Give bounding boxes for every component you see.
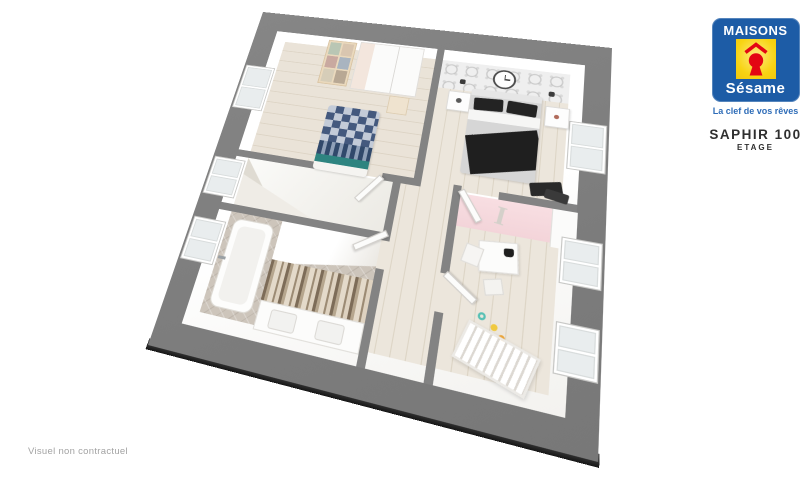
logo-maisons-text: MAISONS — [712, 18, 800, 38]
window-kids-upper — [559, 236, 604, 291]
wardrobe — [349, 42, 424, 97]
bed-double — [460, 88, 543, 184]
sink-basin — [314, 319, 346, 345]
table-lamp-icon — [456, 98, 462, 104]
window-pane — [562, 261, 598, 287]
bedside-table — [386, 95, 410, 115]
brand-block: MAISONS Sésame La clef de vos rêves SAPH… — [700, 18, 811, 152]
window-master-bedroom — [566, 121, 607, 175]
window-pane — [235, 86, 266, 108]
sink-basin — [267, 309, 298, 335]
product-floor-label: ETAGE — [700, 143, 811, 152]
shelf-item — [333, 70, 347, 84]
throw-blanket-dark — [465, 130, 542, 174]
window-pane — [242, 67, 272, 88]
footnote: Visuel non contractuel — [28, 446, 128, 457]
window-pane — [184, 238, 217, 262]
brand-tagline: La clef de vos rêves — [700, 106, 811, 116]
kids-desk — [478, 240, 518, 275]
maisons-sesame-logo: MAISONS Sésame — [712, 18, 800, 102]
product-name: SAPHIR 100 — [700, 127, 811, 142]
window-pane — [570, 146, 604, 172]
nightstand-right — [544, 106, 570, 130]
logo-sesame-text: Sésame — [712, 80, 800, 97]
window-pane — [571, 124, 604, 149]
flower-icon — [554, 115, 559, 120]
shelf-item — [340, 44, 354, 57]
nightstand-left — [446, 90, 472, 112]
kids-stool — [483, 278, 504, 295]
floor-plan-3d: I — [148, 12, 612, 462]
wardrobe-door-split — [389, 47, 400, 93]
logo-yellow-square — [736, 39, 776, 79]
wall-lamp-icon — [548, 91, 554, 97]
wall-lamp-icon — [460, 79, 466, 84]
window-kids-lower — [552, 321, 599, 384]
desk-object-dark — [504, 248, 514, 257]
shelf-item — [337, 57, 351, 70]
window-pane — [206, 175, 237, 195]
keyhole-icon — [736, 39, 776, 79]
